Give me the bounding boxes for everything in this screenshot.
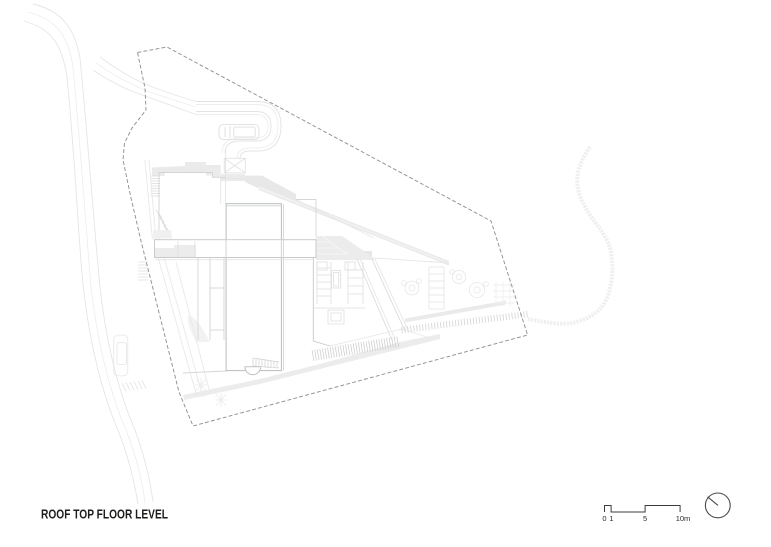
svg-text:0: 0 — [602, 514, 606, 523]
svg-text:1: 1 — [609, 514, 613, 523]
svg-text:5: 5 — [643, 514, 647, 523]
svg-text:ROOF TOP FLOOR LEVEL: ROOF TOP FLOOR LEVEL — [41, 506, 168, 521]
svg-text:10m: 10m — [676, 514, 691, 523]
